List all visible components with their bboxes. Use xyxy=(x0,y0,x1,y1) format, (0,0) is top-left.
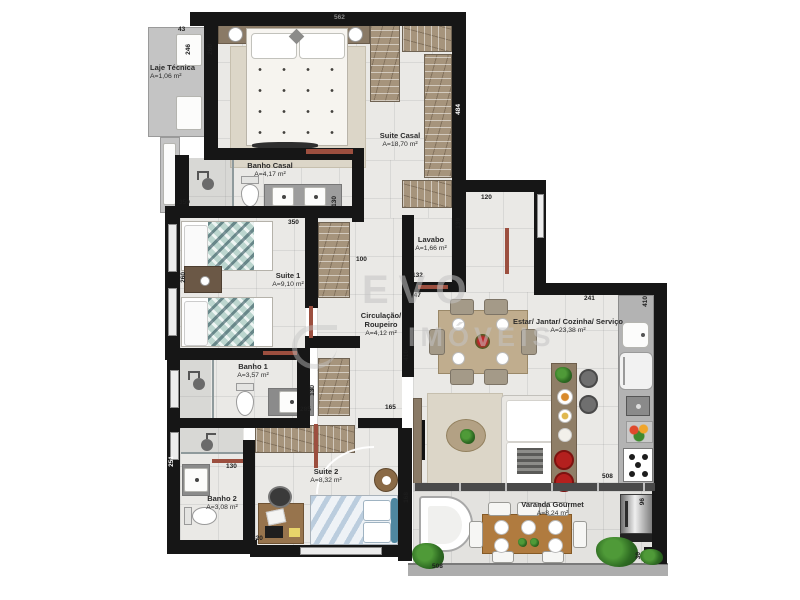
wall-segment xyxy=(654,283,667,491)
room-name: Suite Casal xyxy=(358,132,442,141)
desk xyxy=(258,503,304,544)
sofa-blanket xyxy=(517,448,543,474)
room-name: Lavabo xyxy=(406,236,456,245)
wall-segment xyxy=(534,283,666,295)
wardrobe xyxy=(318,222,350,298)
dimension-label: 285 xyxy=(300,407,311,414)
varanda-chair xyxy=(573,521,587,548)
room-name: Varanda Gourmet xyxy=(505,501,600,510)
watermark-swirl xyxy=(292,325,337,369)
plant-icon xyxy=(518,538,527,547)
plate xyxy=(548,538,563,553)
dimension-label: 43 xyxy=(178,27,185,34)
room-name: Banho 1 xyxy=(224,363,282,372)
wardrobe xyxy=(402,24,452,52)
room-area: A=4,17 m² xyxy=(238,171,302,179)
window xyxy=(168,288,177,336)
notepad xyxy=(289,528,300,537)
room-name: Banho 2 xyxy=(193,495,251,504)
shower-glass xyxy=(232,158,234,208)
dimension-label: 165 xyxy=(385,405,396,412)
pillow xyxy=(184,225,208,270)
laptop xyxy=(265,526,283,538)
toilet xyxy=(240,176,260,208)
single-bed xyxy=(181,221,273,271)
plate xyxy=(496,352,509,365)
shower-icon xyxy=(194,168,216,192)
plate xyxy=(521,520,536,535)
room-area: A=1,06 m² xyxy=(150,73,206,81)
bed-throw xyxy=(391,498,398,543)
room-label-banho-2: Banho 2 A=3,08 m² xyxy=(193,495,251,512)
wall-segment xyxy=(190,12,466,26)
plant-icon xyxy=(530,538,539,547)
room-label-laje-tecnica: Laje Técnica A=1,06 m² xyxy=(150,64,206,81)
toilet-tank xyxy=(236,383,254,391)
dimension-label: 120 xyxy=(481,195,492,202)
plate xyxy=(494,520,509,535)
wardrobe xyxy=(255,425,355,453)
plant-icon xyxy=(640,549,663,565)
dimension-label: 410 xyxy=(643,296,650,307)
stool-red xyxy=(554,450,574,470)
room-name: Circulação/ Roupeiro xyxy=(355,312,407,330)
sink xyxy=(184,468,208,492)
wardrobe xyxy=(424,54,452,178)
room-area: A=3,57 m² xyxy=(224,372,282,380)
plate xyxy=(557,389,573,405)
dimension-label: 168 xyxy=(404,492,411,503)
dimension-label: 508 xyxy=(432,564,443,571)
wall-segment xyxy=(167,540,257,554)
dimension-label: 96 xyxy=(640,498,647,505)
dimension-label: 320 xyxy=(252,536,263,543)
dining-chair xyxy=(484,299,508,315)
dimension-label: 508 xyxy=(602,474,613,481)
stool xyxy=(579,395,598,414)
single-bed xyxy=(181,297,273,347)
dimension-label: 100 xyxy=(356,257,367,264)
dimension-label: 130 xyxy=(310,385,317,396)
fridge xyxy=(619,352,653,390)
room-name: Banho Casal xyxy=(238,162,302,171)
wall-segment xyxy=(243,440,255,547)
stool xyxy=(579,369,598,388)
tv-panel xyxy=(413,398,422,484)
plate xyxy=(558,428,572,442)
door-leaf xyxy=(306,149,353,154)
room-name: Suite 1 xyxy=(256,272,320,281)
window xyxy=(537,194,544,238)
plate xyxy=(548,520,563,535)
room-area: A=18,70 m² xyxy=(358,141,442,149)
grill-icon xyxy=(620,494,653,534)
sliding-door-track xyxy=(413,483,655,491)
quilt xyxy=(208,298,254,346)
wall-segment xyxy=(305,218,318,308)
laje-panel xyxy=(176,96,202,130)
dimension-label: 246 xyxy=(186,44,193,55)
desk-chair xyxy=(268,486,292,508)
toilet xyxy=(235,383,255,417)
shower-glass xyxy=(212,358,214,420)
room-label-suite-1: Suite 1 A=9,10 m² xyxy=(256,272,320,289)
papers xyxy=(266,508,287,525)
room-area: A=9,10 m² xyxy=(256,281,320,289)
dimension-label: 350 xyxy=(288,220,299,227)
window xyxy=(168,224,177,272)
oven-microwave xyxy=(626,396,650,416)
dimension-label: 130 xyxy=(226,464,237,471)
dining-chair xyxy=(484,369,508,385)
sofa xyxy=(501,395,556,487)
nightstand xyxy=(184,266,222,293)
toilet-bowl xyxy=(236,391,254,416)
coffee-table xyxy=(446,419,486,452)
wall-segment xyxy=(358,418,402,428)
room-label-banho-1: Banho 1 A=3,57 m² xyxy=(224,363,282,380)
room-label-varanda: Varanda Gourmet A=8,24 m² xyxy=(505,501,600,518)
room-label-circulacao: Circulação/ Roupeiro A=4,12 m² xyxy=(355,312,407,338)
vegetable-basket xyxy=(626,421,653,443)
room-label-banho-casal: Banho Casal A=4,17 m² xyxy=(238,162,302,179)
pillow xyxy=(184,301,208,346)
wardrobe xyxy=(402,180,452,208)
quilt xyxy=(248,59,346,145)
pillow xyxy=(299,33,345,59)
room-label-suite-2: Suite 2 A=8,32 m² xyxy=(294,468,358,485)
wall-segment xyxy=(465,180,541,192)
quilt xyxy=(208,222,254,270)
shower-icon xyxy=(185,368,207,392)
room-area: A=4,12 m² xyxy=(355,330,407,338)
plate xyxy=(452,352,465,365)
dimension-label: 30 xyxy=(636,552,643,559)
room-label-lavabo: Lavabo A=1,66 m² xyxy=(406,236,456,253)
quilt xyxy=(311,496,363,544)
room-label-suite-casal: Suite Casal A=18,70 m² xyxy=(358,132,442,149)
tv xyxy=(422,420,425,460)
watermark-logo-line1: EVO xyxy=(362,268,476,313)
room-area: A=3,08 m² xyxy=(193,504,251,512)
shower-icon xyxy=(196,431,218,453)
varanda-chair xyxy=(469,521,483,548)
bed-suite-2 xyxy=(310,495,398,545)
room-area: A=1,66 m² xyxy=(406,245,456,253)
room-name: Laje Técnica xyxy=(150,64,206,73)
dimension-label: 130 xyxy=(456,218,463,229)
room-name: Suite 2 xyxy=(294,468,358,477)
lamp-icon xyxy=(228,27,243,42)
pillow xyxy=(363,500,391,521)
dimension-label: 251 xyxy=(169,456,176,467)
wardrobe xyxy=(370,24,400,102)
toilet-bowl xyxy=(241,184,259,207)
dimension-label: 484 xyxy=(456,104,463,115)
window xyxy=(300,547,382,555)
dimension-label: 241 xyxy=(584,296,595,303)
double-bed xyxy=(246,28,348,146)
pillow xyxy=(363,522,391,543)
plate xyxy=(558,409,572,423)
dimension-label: 350 xyxy=(179,200,190,207)
lamp-icon xyxy=(348,27,363,42)
room-area: A=8,24 m² xyxy=(505,510,600,518)
floor-plan-canvas: Laje Técnica A=1,06 m² Suite Casal A=18,… xyxy=(0,0,800,600)
plate xyxy=(494,538,509,553)
dimension-label: 130 xyxy=(332,196,339,207)
watermark-logo-line2: IMÓVEIS xyxy=(408,322,556,353)
plant-icon xyxy=(555,367,572,383)
round-side-table xyxy=(374,468,398,492)
toilet-tank xyxy=(184,507,192,525)
dimension-label: 260 xyxy=(208,44,215,55)
cooktop xyxy=(623,448,653,482)
window xyxy=(170,370,179,408)
dining-chair xyxy=(450,369,474,385)
wall-segment xyxy=(165,206,358,218)
dimension-label: 562 xyxy=(334,15,345,22)
sink xyxy=(272,187,294,206)
door-leaf xyxy=(314,424,318,468)
burner-icon xyxy=(629,454,635,460)
dimension-label: 260 xyxy=(181,272,188,283)
room-area: A=8,32 m² xyxy=(294,477,358,485)
door-leaf xyxy=(505,228,509,274)
sink xyxy=(304,187,326,206)
wall-segment xyxy=(167,418,310,428)
